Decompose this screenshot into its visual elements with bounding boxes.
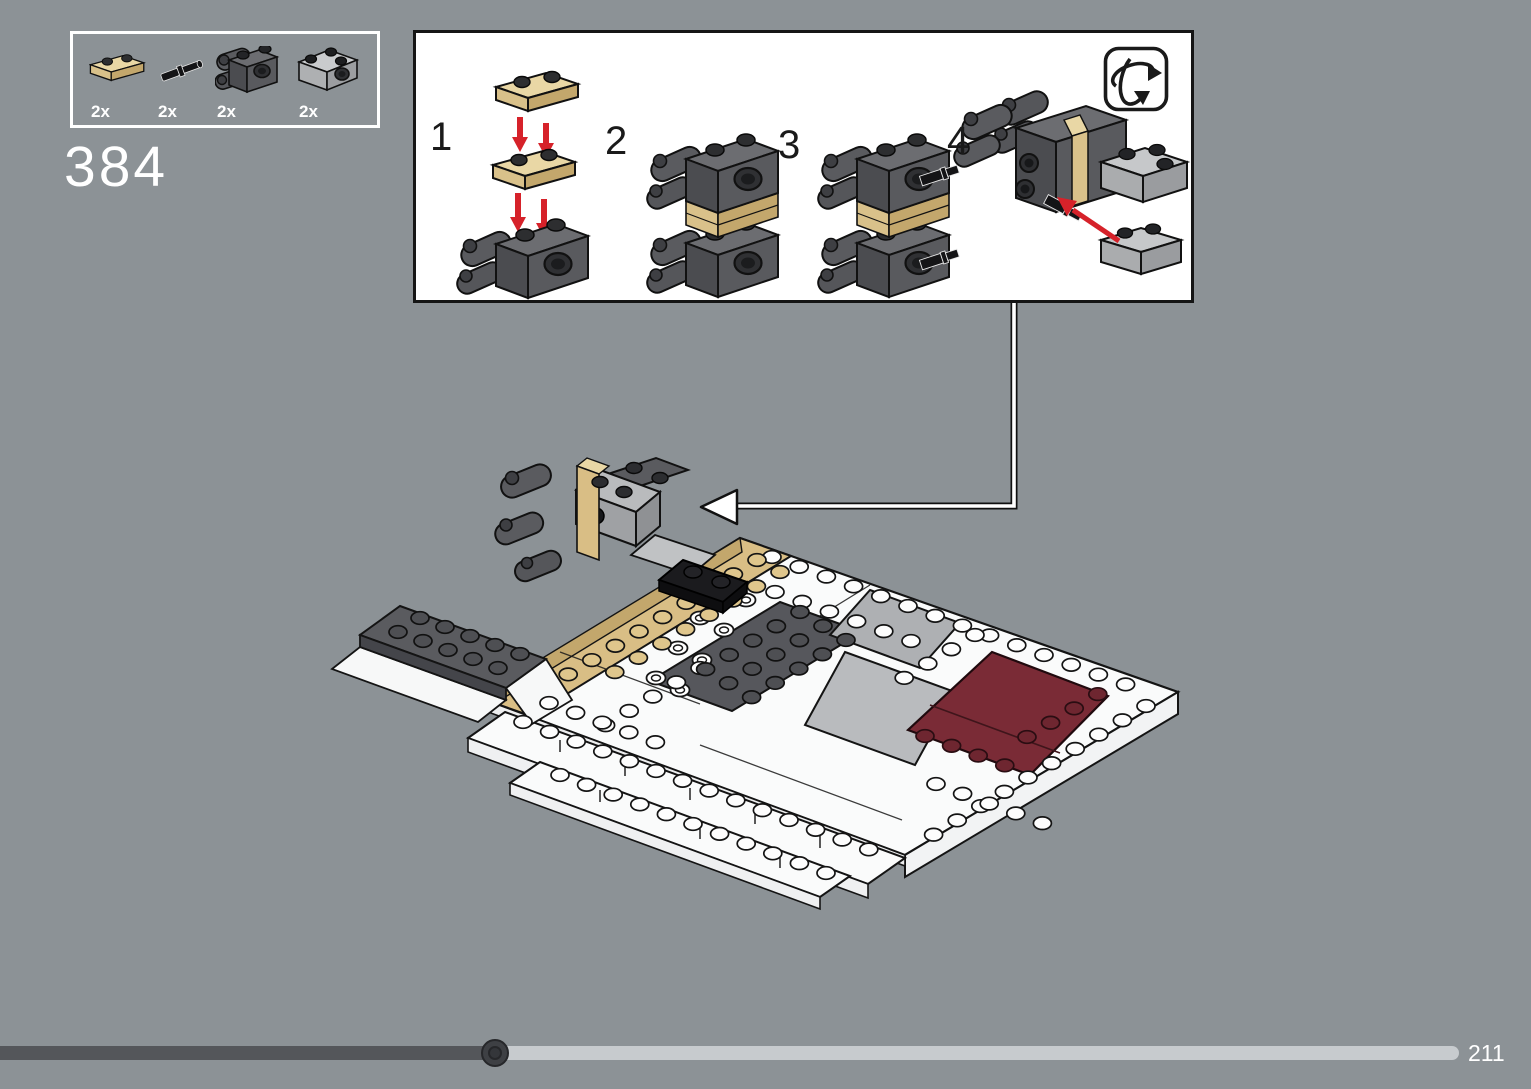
pin-connector-icon (156, 46, 210, 90)
substep-1-number: 1 (430, 115, 452, 160)
white-studs (514, 551, 1155, 880)
dark-studs (389, 606, 855, 704)
progress-track-remaining[interactable] (497, 1046, 1459, 1060)
tip-dark-plate (360, 606, 546, 688)
light-gray-panel (805, 652, 955, 765)
substep-2-number: 2 (605, 119, 627, 164)
part-tan-plate: 2x (89, 34, 151, 125)
part-count: 2x (299, 102, 318, 122)
substep-1-drawing (454, 72, 588, 299)
substep-4-drawing (951, 88, 1187, 274)
tan-studs (559, 554, 789, 681)
instruction-page: 2x 2x (0, 0, 1531, 1089)
light-brick-icon (297, 46, 361, 98)
part-count: 2x (158, 102, 177, 122)
rotate-model-icon (1103, 46, 1169, 112)
progress-track-filled[interactable] (0, 1046, 497, 1060)
step-number: 384 (64, 134, 168, 200)
substep-2-drawing (644, 134, 778, 297)
tan-strip (480, 538, 791, 716)
tan-plate-icon (89, 46, 147, 88)
part-technic-brick: 2x (215, 34, 283, 125)
new-subassembly (492, 458, 747, 613)
progress-handle-inner (488, 1046, 502, 1060)
technic-brick-icon (215, 46, 281, 100)
wing-deck (480, 538, 1178, 855)
callout-connector (701, 303, 1014, 524)
page-number: 211 (1468, 1040, 1505, 1067)
placement-arrow (701, 490, 737, 524)
dark-center-plates (650, 602, 862, 711)
substep-drawings (416, 33, 1191, 300)
part-count: 2x (91, 102, 110, 122)
parts-list-box: 2x 2x (70, 31, 380, 128)
dark-red-panel (908, 652, 1108, 775)
substep-4-number: 4 (947, 119, 969, 164)
part-count: 2x (217, 102, 236, 122)
instruction-box: 1 2 3 4 (413, 30, 1194, 303)
part-light-brick: 2x (297, 34, 367, 125)
part-pin-connector: 2x (156, 34, 212, 125)
progress-handle[interactable] (481, 1039, 509, 1067)
substep-3-number: 3 (778, 123, 800, 168)
red-studs (916, 688, 1107, 772)
light-gray-slope (830, 590, 960, 668)
substep-3-drawing (815, 134, 960, 297)
